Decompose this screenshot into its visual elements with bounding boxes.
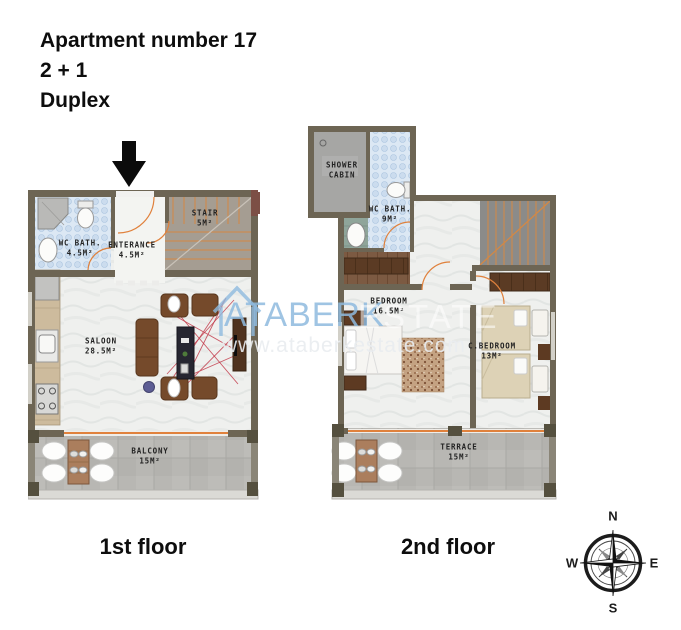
compass-rose: N S E W <box>563 500 663 624</box>
floor2-plan: SHOWER CABIN WC BATH. 9M² BEDROOM 16.5M²… <box>308 126 558 506</box>
apartment-config: 2 + 1 <box>40 56 257 86</box>
compass-south-label: S <box>609 601 618 616</box>
wash-basin <box>347 223 365 247</box>
hall-wardrobe <box>344 258 408 274</box>
side-table <box>532 310 548 336</box>
room-label-entrance: ENTERANCE 4.5M² <box>108 240 156 260</box>
kitchen <box>34 270 60 425</box>
terrace-table <box>356 440 377 482</box>
nightstand <box>538 396 550 410</box>
room-label-wc-bath: WC BATH. 4.5M² <box>59 238 102 258</box>
room-label-stair: STAIR 5M² <box>192 208 219 228</box>
floor1-caption: 1st floor <box>100 534 187 560</box>
room-label-saloon: SALOON 28.5M² <box>85 336 117 356</box>
entrance-arrow-icon <box>112 141 148 188</box>
room-label-bedroom: BEDROOM 16.5M² <box>370 296 407 316</box>
page-title: Apartment number 17 2 + 1 Duplex <box>40 26 257 116</box>
nightstand <box>538 344 550 360</box>
toilet-tank <box>78 201 93 208</box>
room-label-c-bedroom: C.BEDROOM 13M² <box>468 341 516 361</box>
room-label-terrace: TERRACE 15M² <box>440 442 477 462</box>
room-label-shower-cabin: SHOWER CABIN <box>314 160 370 180</box>
floor1-plan: WC BATH. 4.5M² ENTERANCE 4.5M² STAIR 5M²… <box>28 188 260 502</box>
nightstand <box>344 311 366 325</box>
room-label-wc-bath-2: WC BATH. 9M² <box>369 204 412 224</box>
apartment-number: Apartment number 17 <box>40 26 257 56</box>
sofa <box>136 319 158 376</box>
floor2-caption: 2nd floor <box>401 534 495 560</box>
toilet <box>387 183 405 198</box>
bedroom-rug <box>402 338 444 392</box>
armchair <box>192 377 217 399</box>
compass-west-label: W <box>566 556 578 571</box>
floor-plan-page: Apartment number 17 2 + 1 Duplex <box>0 0 681 630</box>
wash-basin <box>39 238 57 262</box>
compass-east-label: E <box>650 556 659 571</box>
apartment-type: Duplex <box>40 86 257 116</box>
room-label-balcony: BALCONY 15M² <box>131 446 168 466</box>
compass-north-label: N <box>608 509 617 524</box>
toilet <box>78 208 94 228</box>
side-table <box>532 366 548 392</box>
stair-area <box>480 201 550 265</box>
nightstand <box>344 376 366 390</box>
tv <box>234 335 237 356</box>
armchair <box>192 294 218 316</box>
floor2-drawing <box>308 126 558 506</box>
